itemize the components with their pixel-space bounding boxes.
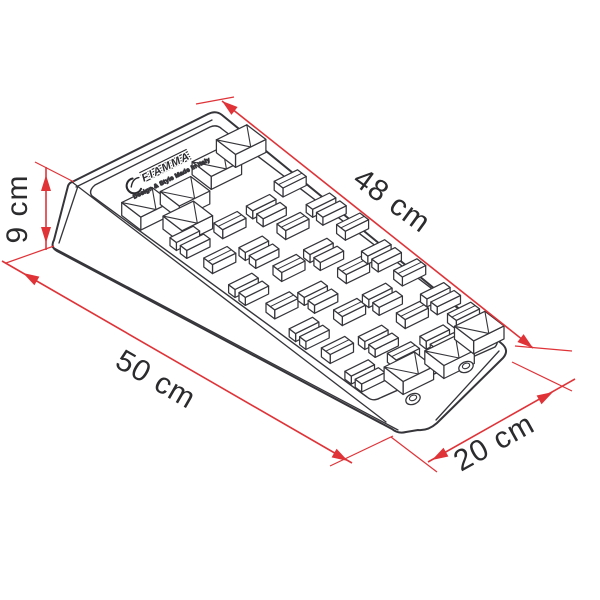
- ramp-dimension-diagram: FIAMMA Design & Style Made in Italy 48 c…: [0, 0, 600, 600]
- dim-height-label: 9 cm: [1, 174, 34, 243]
- dim-base-length-label: 50 cm: [110, 344, 202, 416]
- diagram-canvas: FIAMMA Design & Style Made in Italy 48 c…: [0, 0, 600, 600]
- dim-width-label: 20 cm: [448, 407, 540, 478]
